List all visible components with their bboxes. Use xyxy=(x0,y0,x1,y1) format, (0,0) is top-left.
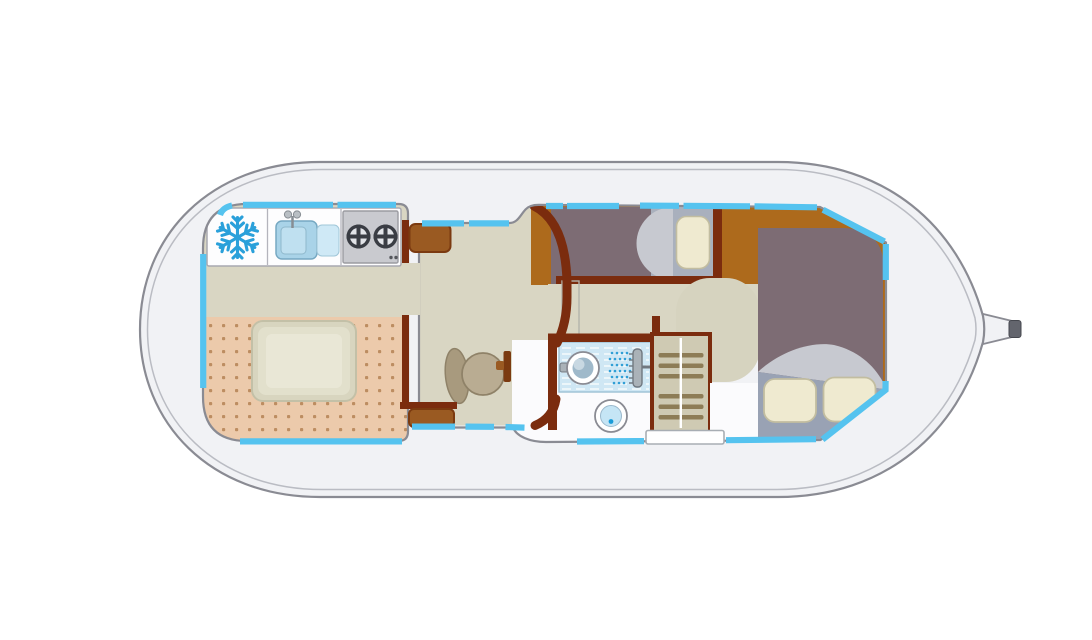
saloon-galley xyxy=(198,200,413,446)
window xyxy=(506,427,525,428)
junction-wall-bottom xyxy=(400,402,457,409)
cabin-interior xyxy=(198,200,886,446)
double-bed-pillow xyxy=(764,379,816,422)
faucet-knob xyxy=(284,211,291,218)
doorway-floor xyxy=(403,263,420,315)
dining-table xyxy=(252,321,356,401)
sink-basin-inner xyxy=(281,227,306,254)
floor-plan-stage xyxy=(0,0,1092,640)
sink-drainer xyxy=(317,225,339,256)
window xyxy=(755,206,818,207)
faucet-knob xyxy=(293,211,300,218)
stove-knob xyxy=(394,256,397,259)
toilet xyxy=(595,400,627,432)
window xyxy=(726,439,816,440)
entrance-door-threshold xyxy=(646,431,724,445)
stove xyxy=(343,211,398,263)
burner-icon xyxy=(374,225,398,249)
window xyxy=(684,206,751,207)
steering-pedestal xyxy=(504,351,512,382)
steering-handle xyxy=(496,361,504,370)
single-bed-pillow xyxy=(677,217,710,269)
boat-floor-plan xyxy=(0,0,1092,640)
junction-cabinet-top xyxy=(410,224,451,252)
cabin-wall-right xyxy=(713,205,722,285)
junction-wall-upper xyxy=(402,220,409,263)
stove-knob xyxy=(389,256,392,259)
basin-highlight xyxy=(574,359,585,370)
louvered-wardrobe xyxy=(652,334,710,432)
junction-wall-lower xyxy=(402,315,409,404)
tiller-cap xyxy=(1009,321,1021,338)
burner-icon xyxy=(347,225,371,249)
helm-seat xyxy=(462,353,504,395)
toilet-drain xyxy=(609,419,614,424)
